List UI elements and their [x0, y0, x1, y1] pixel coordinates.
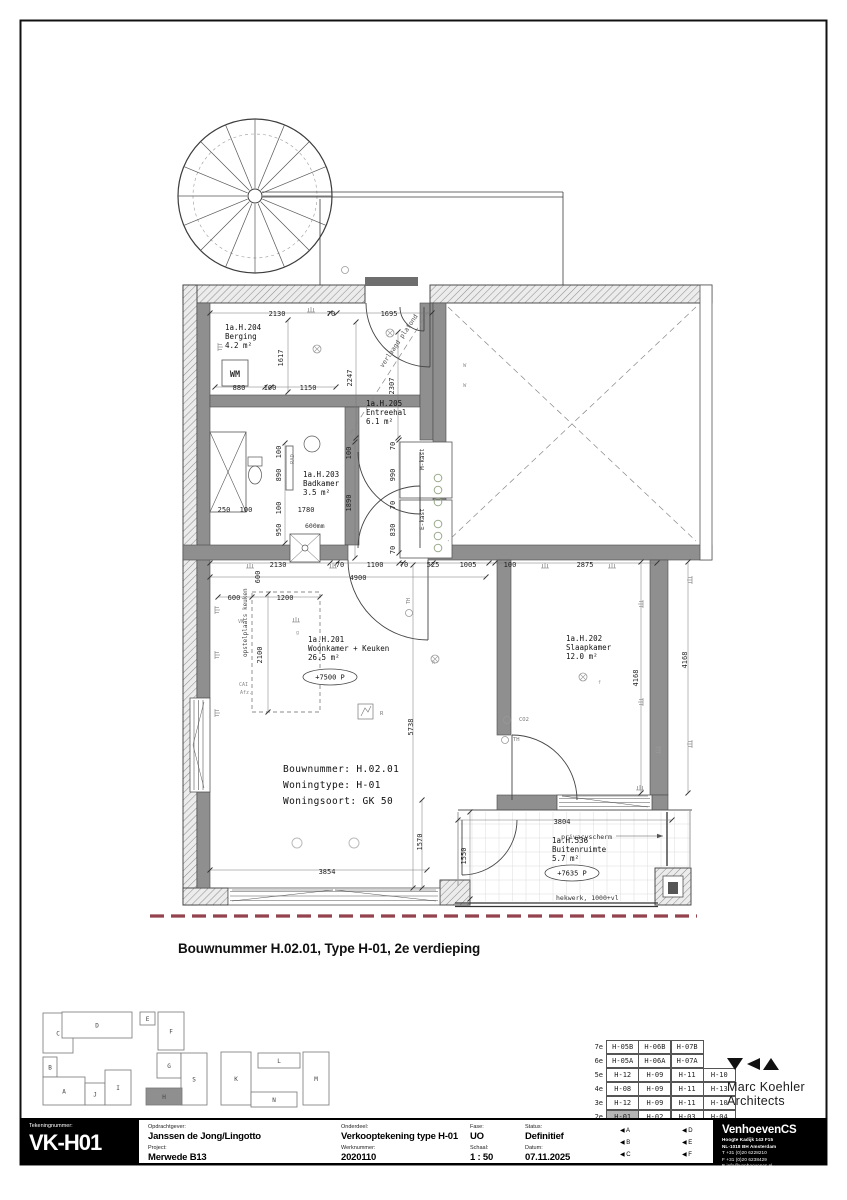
keyplan-building-label: E	[146, 1016, 150, 1023]
dimension-label: 1005	[460, 561, 477, 569]
dimension-label: 1780	[298, 506, 315, 514]
room-label: 4.2 m²	[225, 341, 252, 350]
detector-icon	[342, 267, 349, 274]
room-label: 1a.H.204	[225, 323, 262, 332]
socket-icon	[215, 651, 220, 659]
vcs-name: VenhoevenCS	[722, 1124, 825, 1136]
detector-icon	[406, 610, 413, 617]
type-cell: H-11	[671, 1082, 704, 1096]
room-label: Entreehal	[366, 408, 407, 417]
revision-marker: ◀ B	[620, 1139, 631, 1146]
title-block: Tekeningnummer: VK-H01 Opdrachtgever: Ja…	[20, 1118, 827, 1165]
plan-note: VW	[238, 619, 245, 625]
keyplan-building-label: I	[116, 1085, 120, 1092]
socket-icon	[215, 606, 220, 614]
field-schaal: Schaal: 1 : 50	[470, 1145, 493, 1163]
mka-logo-mark	[727, 1057, 783, 1071]
dimension-label: 5738	[407, 719, 415, 736]
dimension-label: 1200	[277, 594, 294, 602]
keyplan-building-label: B	[48, 1065, 52, 1072]
mka-logo-line2: Architects	[727, 1094, 837, 1108]
type-cell: H-06B	[638, 1040, 671, 1054]
dimension-label: 2247	[346, 370, 354, 387]
type-cell: H-11	[671, 1096, 704, 1110]
dimension-label: 4168	[632, 670, 640, 687]
dimension-label: 1570	[416, 834, 424, 851]
room-label: 5.7 m²	[552, 854, 579, 863]
floor-label: 3e	[583, 1096, 607, 1110]
plan-note: f	[598, 680, 601, 686]
field-project: Project: Merwede B13	[148, 1145, 207, 1163]
type-cell: H-08	[606, 1082, 639, 1096]
dimension-label: 70	[336, 561, 344, 569]
field-status: Status: Definitief	[525, 1124, 564, 1142]
revision-marker: ◀ C	[620, 1151, 631, 1158]
ceiling-light-icon	[386, 329, 394, 337]
dimension-label: 3854	[319, 868, 336, 876]
revision-markers-1: ◀ A◀ B◀ C	[620, 1127, 631, 1163]
revision-marker: ◀ F	[682, 1151, 693, 1158]
floor-table-row: 3eH-12H-09H-11H-10	[583, 1096, 736, 1110]
drawing-sheet: 2130701695161722472307880100115010089010…	[0, 0, 847, 1200]
keyplan-building-label: J	[93, 1092, 97, 1099]
dimension-label: 830	[389, 524, 397, 537]
dimension-label: 1550	[460, 848, 468, 865]
room-label: Slaapkamer	[566, 643, 612, 652]
dimension-label: 100	[345, 447, 353, 460]
plan-note: M-kast	[419, 448, 426, 470]
unit-info-line: Bouwnummer: H.02.01	[283, 764, 399, 775]
dimension-label: 100	[504, 561, 517, 569]
dimension-label: 525	[427, 561, 440, 569]
floor-table-row: 6eH-05AH-06AH-07A	[583, 1054, 736, 1068]
type-cell: H-09	[638, 1068, 671, 1082]
plan-note: RAD	[290, 454, 296, 464]
keyplan-building-label: C	[56, 1031, 60, 1038]
field-werknummer: Werknummer: 2020110	[341, 1145, 376, 1163]
dimension-label: 100	[275, 502, 283, 515]
room-label: 26.5 m²	[308, 653, 340, 662]
field-datum: Datum: 07.11.2025	[525, 1145, 570, 1163]
level-label: +7635 P	[557, 870, 587, 878]
room-label: 12.0 m²	[566, 652, 598, 661]
floor-label: 5e	[583, 1068, 607, 1082]
mka-logo-line1: Marc Koehler	[727, 1080, 837, 1094]
dimension-label: 880	[233, 384, 246, 392]
room-label: Woonkamer + Keuken	[308, 644, 389, 653]
type-cell: H-12	[606, 1068, 639, 1082]
room-label: 1a.H.201	[308, 635, 344, 644]
dimension-label: 950	[275, 524, 283, 537]
dimension-label: 890	[275, 469, 283, 482]
ceiling-light-icon	[313, 345, 321, 353]
marc-koehler-logo: Marc Koehler Architects	[727, 1057, 837, 1108]
field-opdrachtgever: Opdrachtgever: Janssen de Jong/Lingotto	[148, 1124, 261, 1142]
keyplan-building-label: M	[314, 1076, 318, 1083]
plan-note: W	[463, 383, 467, 389]
room-label: 1a.H.205	[366, 399, 402, 408]
drawing-number-box: Tekeningnummer: VK-H01	[22, 1120, 139, 1163]
dimension-label: 3804	[554, 818, 571, 826]
keyplan-building-label: S	[192, 1077, 196, 1084]
type-cell: H-07B	[671, 1040, 704, 1054]
keyplan-building-label: N	[272, 1097, 276, 1104]
room-label: 3.5 m²	[303, 488, 330, 497]
dimension-label: 70	[389, 442, 397, 450]
room-label: 6.1 m²	[366, 417, 393, 426]
dimension-label: 70	[389, 501, 397, 509]
plan-note: R	[380, 711, 384, 717]
type-cell: H-06A	[638, 1054, 671, 1068]
unit-info-line: Woningsoort: GK 50	[283, 796, 393, 807]
floor-type-table: 7eH-05BH-06BH-07B6eH-05AH-06AH-07A5eH-12…	[583, 1040, 736, 1124]
ceiling-light-icon	[579, 673, 587, 681]
plan-note: verlaagd plafond	[378, 313, 420, 369]
dimension-label: 100	[240, 506, 253, 514]
plan-note: 600mm	[305, 522, 325, 530]
dimension-label: 4168	[681, 652, 689, 669]
socket-icon	[638, 600, 643, 608]
dimension-label: 4900	[350, 574, 367, 582]
dimension-label: 100	[264, 384, 277, 392]
dimension-label: 70	[327, 310, 335, 318]
unit-info-line: Woningtype: H-01	[283, 780, 381, 791]
plan-note: TH	[513, 737, 520, 743]
type-cell: H-05A	[606, 1054, 639, 1068]
venhoevencs-logo: VenhoevenCS Hoogte Kadijk 143 F15 NL-101…	[713, 1120, 825, 1163]
room-label: Buitenruimte	[552, 845, 607, 854]
floor-table-row: 7eH-05BH-06BH-07B	[583, 1040, 736, 1054]
dimension-label: 2130	[270, 561, 287, 569]
dimension-label: 2130	[269, 310, 286, 318]
revision-markers-2: ◀ D◀ E◀ F	[682, 1127, 693, 1163]
floor-table-row: 4eH-08H-09H-11H-13	[583, 1082, 736, 1096]
type-cell: H-07A	[671, 1054, 704, 1068]
floor-table-row: 5eH-12H-09H-11H-10	[583, 1068, 736, 1082]
keyplan-building-label: K	[234, 1076, 238, 1083]
detector-icon	[502, 737, 509, 744]
dimension-label: 1695	[381, 310, 398, 318]
socket-icon	[307, 307, 315, 312]
plan-note: W	[463, 363, 467, 369]
drawing-number-label: Tekeningnummer:	[29, 1123, 139, 1129]
field-fase: Fase: UO	[470, 1124, 484, 1142]
socket-icon	[636, 785, 644, 790]
plan-note: hekwerk, 1000+vl	[556, 894, 619, 902]
revision-marker: ◀ E	[682, 1139, 693, 1146]
dimension-label: 990	[389, 469, 397, 482]
floor-label: 6e	[583, 1054, 607, 1068]
level-label: +7500 P	[315, 674, 345, 682]
plan-note: WM	[230, 370, 240, 380]
socket-icon	[292, 617, 300, 622]
dimension-label: 70	[389, 546, 397, 554]
field-onderdeel: Onderdeel: Verkooptekening type H-01	[341, 1124, 458, 1142]
type-cell: H-12	[606, 1096, 639, 1110]
keyplan-building-label: F	[169, 1029, 173, 1036]
outer-walls	[183, 285, 712, 905]
socket-icon	[608, 563, 616, 568]
unit-info-block: Bouwnummer: H.02.01Woningtype: H-01Wonin…	[283, 764, 399, 807]
dimension-label: 600	[228, 594, 241, 602]
drawing-caption: Bouwnummer H.02.01, Type H-01, 2e verdie…	[178, 941, 480, 956]
keyplan-building-label: D	[95, 1023, 99, 1030]
socket-icon	[215, 709, 220, 717]
keyplan-building-label: H	[162, 1094, 166, 1101]
dimension-label: 250	[218, 506, 231, 514]
revision-marker: ◀ D	[682, 1127, 693, 1134]
socket-icon	[246, 563, 254, 568]
plan-note: CO2	[519, 717, 529, 723]
keyplan-building-label: A	[62, 1089, 66, 1096]
floor-label: 4e	[583, 1082, 607, 1096]
detector-icon	[292, 838, 302, 848]
room-label: Badkamer	[303, 479, 340, 488]
plan-note: g	[296, 630, 299, 636]
site-key-plan: CDBAJIEFGSHKLNM	[35, 1003, 340, 1118]
detector-icon	[349, 838, 359, 848]
dimension-label: 600	[254, 571, 262, 584]
type-cell: H-05B	[606, 1040, 639, 1054]
dimension-label: 1617	[277, 350, 285, 367]
plan-note: privacyscherm	[561, 833, 612, 841]
type-cell: H-09	[638, 1082, 671, 1096]
socket-icon	[218, 343, 223, 351]
keyplan-building-label: L	[277, 1058, 281, 1065]
room-label: 1a.H.203	[303, 470, 339, 479]
plan-note: E-kast	[419, 508, 426, 530]
dimension-label: 2875	[577, 561, 594, 569]
dimension-label: 2307	[388, 378, 396, 395]
plan-note: CAI	[239, 682, 248, 688]
plan-note: Afz.	[240, 690, 252, 696]
dimension-label: 2100	[256, 647, 264, 664]
room-label: 1a.H.202	[566, 634, 602, 643]
spiral-stair	[178, 119, 563, 285]
dimension-label: 1100	[367, 561, 384, 569]
plan-note: TH	[406, 598, 412, 604]
drawing-number: VK-H01	[29, 1130, 139, 1156]
shafts-and-windows	[190, 285, 712, 905]
room-label: Berging	[225, 332, 257, 341]
keyplan-building-label: G	[167, 1063, 171, 1070]
type-cell: H-09	[638, 1096, 671, 1110]
socket-icon	[638, 698, 643, 706]
type-cell: H-11	[671, 1068, 704, 1082]
dimension-label: 1890	[345, 495, 353, 512]
dimension-label: 70	[400, 561, 408, 569]
floor-label: 7e	[583, 1040, 607, 1054]
socket-icon	[541, 563, 549, 568]
dimension-label: 100	[275, 446, 283, 459]
revision-marker: ◀ A	[620, 1127, 631, 1134]
dimension-label: 1150	[300, 384, 317, 392]
